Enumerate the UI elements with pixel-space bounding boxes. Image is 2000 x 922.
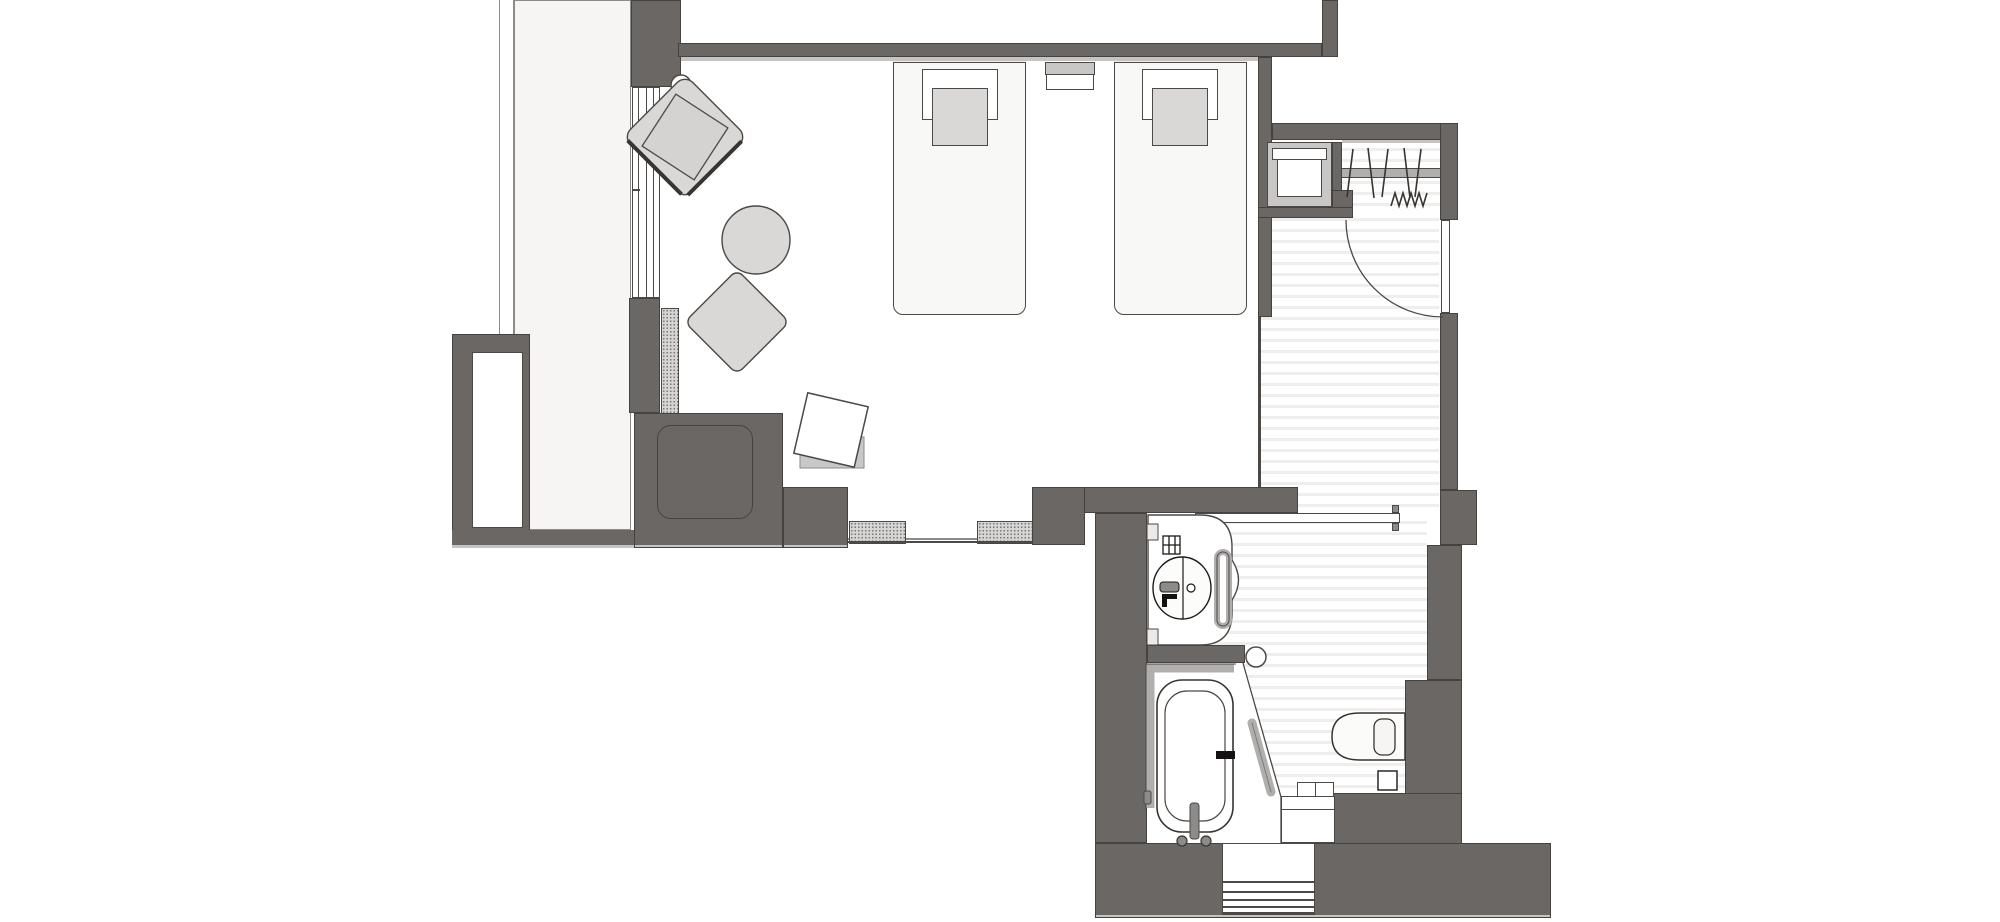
waste-bin: [1378, 771, 1397, 790]
basin-faucet-body: [1160, 582, 1179, 592]
shelf-grid: [1163, 536, 1180, 554]
vanity-leg-top: [1147, 524, 1158, 540]
shower-screen-edge: [1252, 723, 1271, 792]
floor-plan: [0, 0, 2000, 922]
desk-chair: [794, 393, 868, 467]
tub-knob-left: [1177, 836, 1187, 846]
tub-grab-tab: [1144, 791, 1151, 804]
fixtures-overlay: [0, 0, 2000, 922]
entry-door-swing: [1346, 220, 1443, 317]
vanity-leg-bottom: [1147, 629, 1158, 645]
tub-handle: [1216, 751, 1235, 759]
toilet-lid: [1374, 719, 1395, 755]
armchair: [623, 75, 747, 199]
ottoman: [685, 270, 790, 375]
tub-knob-right: [1201, 836, 1211, 846]
round-side-table: [722, 206, 790, 274]
tub-faucet: [1190, 803, 1199, 839]
hangers: [1347, 148, 1421, 198]
basin-knob: [1187, 584, 1195, 592]
door-knob: [1246, 647, 1266, 667]
